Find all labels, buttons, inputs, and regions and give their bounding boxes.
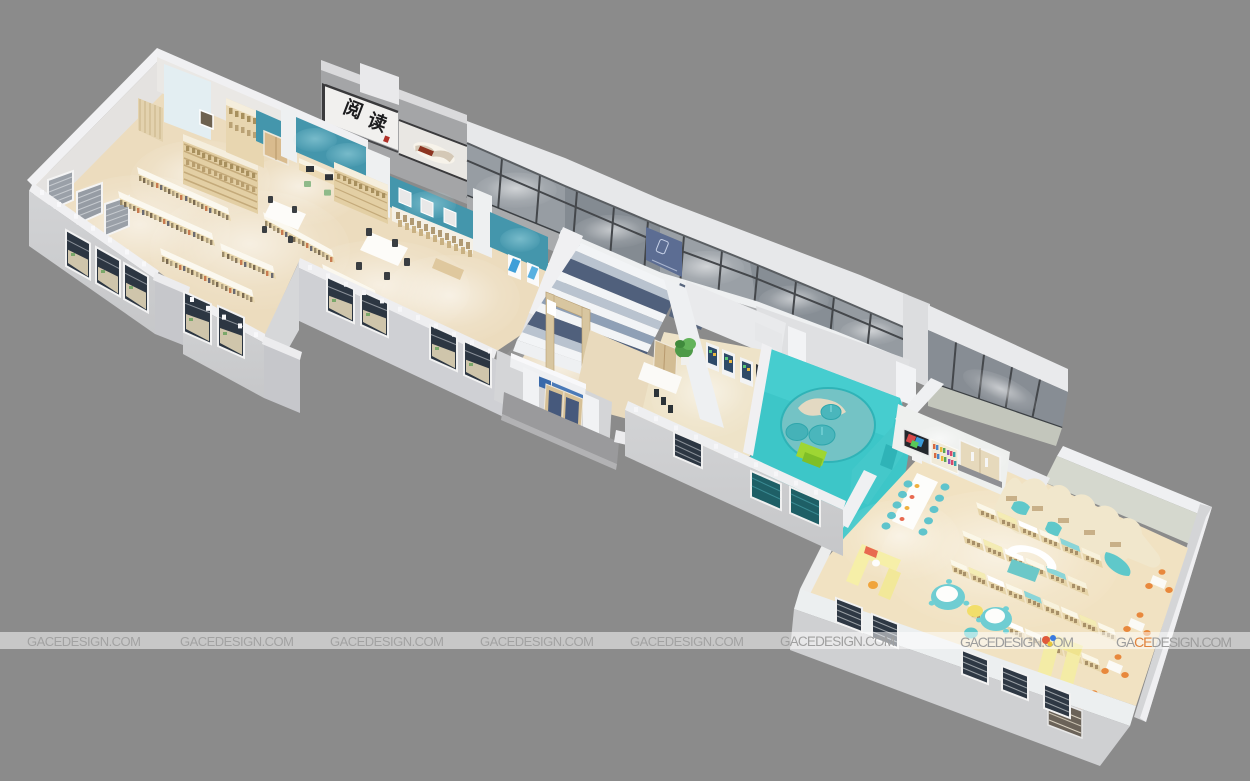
svg-text:GACEDESIGN.COM: GACEDESIGN.COM bbox=[1116, 634, 1232, 650]
svg-text:GACEDESIGN.COM: GACEDESIGN.COM bbox=[330, 634, 444, 649]
svg-text:GACEDESIGN.COM: GACEDESIGN.COM bbox=[480, 634, 594, 649]
svg-text:GACEDESIGN.COM: GACEDESIGN.COM bbox=[630, 634, 744, 649]
svg-text:GACEDESIGN.COM: GACEDESIGN.COM bbox=[780, 634, 895, 649]
svg-text:GACEDESIGN.COM: GACEDESIGN.COM bbox=[180, 634, 294, 649]
svg-text:GACEDESIGN.COM: GACEDESIGN.COM bbox=[27, 634, 141, 649]
svg-text:GACEDESIGN.COM: GACEDESIGN.COM bbox=[960, 634, 1074, 650]
